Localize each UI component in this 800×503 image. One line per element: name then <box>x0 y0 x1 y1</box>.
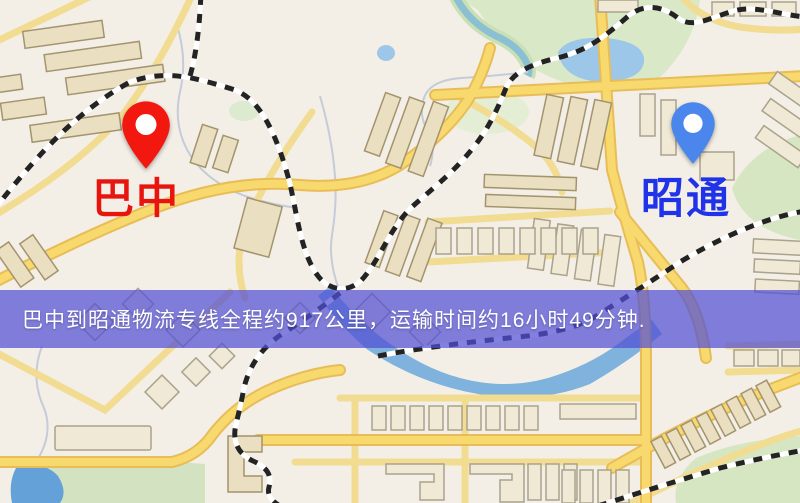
origin-pin-icon[interactable] <box>117 100 175 170</box>
destination-pin-icon[interactable] <box>666 101 720 165</box>
route-info-banner: 巴中到昭通物流专线全程约917公里，运输时间约16小时49分钟. <box>0 290 800 348</box>
destination-pin-hole <box>683 114 702 133</box>
origin-pin-hole <box>136 114 157 135</box>
map-view: 巴中 昭通 巴中到昭通物流专线全程约917公里，运输时间约16小时49分钟. <box>0 0 800 503</box>
origin-city-label: 巴中 <box>92 178 180 220</box>
destination-city-label: 昭通 <box>641 178 731 221</box>
route-info-text: 巴中到昭通物流专线全程约917公里，运输时间约16小时49分钟. <box>22 304 646 334</box>
map-canvas <box>0 0 800 503</box>
